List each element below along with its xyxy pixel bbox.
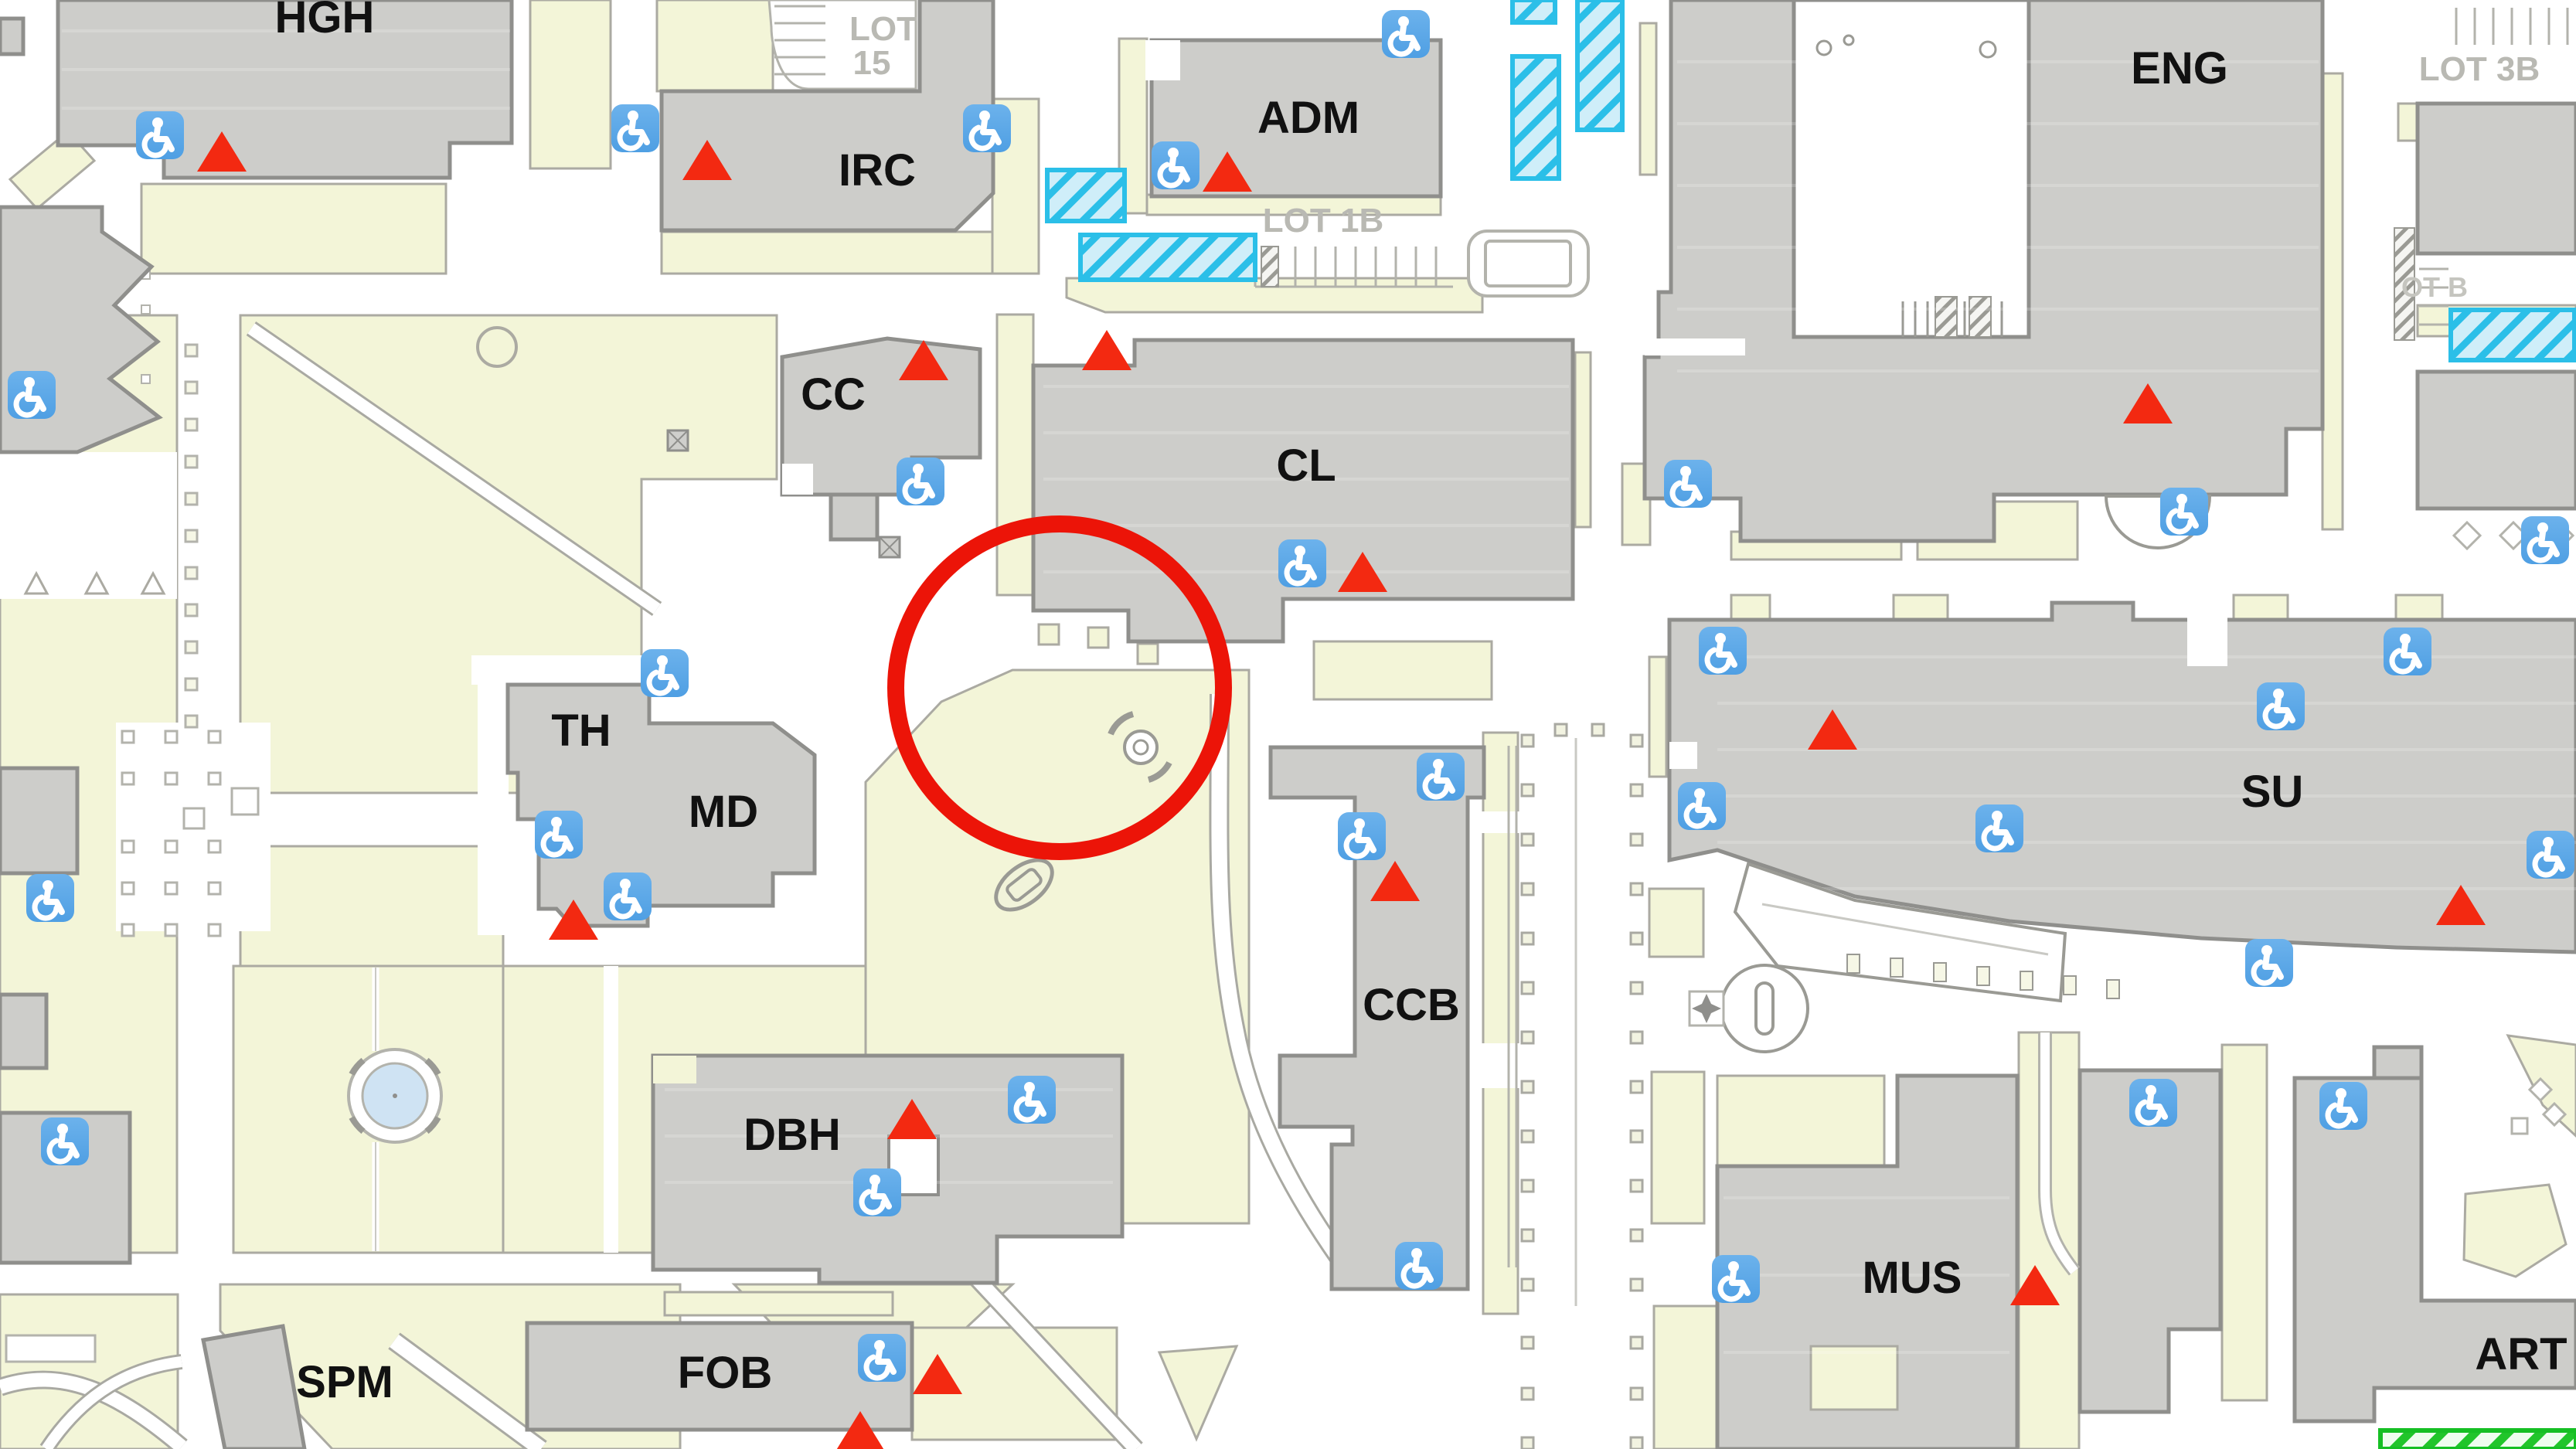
svg-text:LOT 1B: LOT 1B bbox=[1263, 202, 1383, 240]
svg-text:OT B: OT B bbox=[2401, 271, 2468, 303]
svg-text:CCB: CCB bbox=[1363, 980, 1460, 1030]
svg-text:ADM: ADM bbox=[1257, 93, 1359, 143]
svg-text:CC: CC bbox=[801, 369, 866, 420]
svg-text:IRC: IRC bbox=[839, 145, 916, 196]
svg-text:ENG: ENG bbox=[2131, 43, 2228, 94]
svg-text:LOT 3B: LOT 3B bbox=[2419, 50, 2540, 88]
svg-text:FOB: FOB bbox=[678, 1348, 772, 1398]
svg-text:CL: CL bbox=[1276, 440, 1336, 491]
svg-text:15: 15 bbox=[853, 44, 891, 82]
svg-text:TH: TH bbox=[551, 706, 611, 756]
svg-text:MD: MD bbox=[689, 787, 758, 837]
svg-text:MUS: MUS bbox=[1863, 1253, 1962, 1303]
svg-text:LOT: LOT bbox=[849, 10, 917, 48]
svg-text:ART: ART bbox=[2475, 1329, 2567, 1379]
svg-text:HGH: HGH bbox=[275, 0, 375, 43]
svg-text:SU: SU bbox=[2241, 767, 2304, 817]
svg-text:DBH: DBH bbox=[744, 1110, 841, 1160]
svg-text:SPM: SPM bbox=[296, 1357, 393, 1407]
